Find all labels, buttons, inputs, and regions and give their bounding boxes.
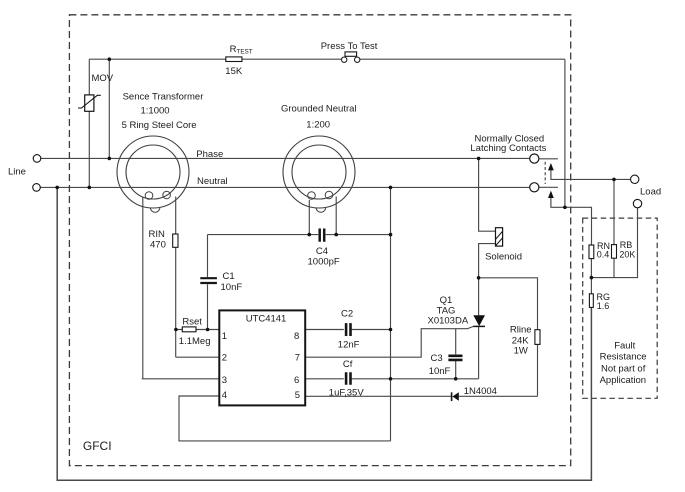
svg-text:Resistance: Resistance (600, 352, 647, 363)
svg-text:C2: C2 (341, 309, 353, 320)
svg-text:Solenoid: Solenoid (485, 252, 522, 263)
svg-text:Sence Transformer: Sence Transformer (123, 91, 204, 102)
svg-text:1.6: 1.6 (597, 301, 610, 311)
svg-text:5: 5 (295, 390, 300, 401)
svg-text:470: 470 (150, 239, 166, 250)
svg-text:Rline: Rline (510, 324, 532, 335)
svg-text:1:1000: 1:1000 (141, 106, 170, 117)
svg-text:Fault: Fault (614, 340, 635, 351)
svg-text:8: 8 (294, 331, 299, 342)
svg-text:1W: 1W (514, 346, 528, 357)
svg-text:Press To Test: Press To Test (321, 41, 378, 52)
svg-text:Neutral: Neutral (197, 176, 228, 187)
svg-text:6: 6 (294, 375, 299, 386)
svg-text:Line: Line (8, 166, 26, 177)
svg-text:1N4004: 1N4004 (464, 386, 497, 397)
svg-text:MOV: MOV (92, 73, 114, 84)
svg-text:5 Ring Steel Core: 5 Ring Steel Core (122, 120, 197, 131)
svg-text:4: 4 (222, 390, 227, 401)
svg-text:C4: C4 (316, 246, 328, 257)
svg-text:20K: 20K (619, 250, 635, 260)
svg-text:Grounded Neutral: Grounded Neutral (281, 103, 357, 114)
svg-text:C3: C3 (431, 353, 443, 364)
svg-text:Cf: Cf (343, 359, 353, 370)
svg-text:Phase: Phase (196, 149, 223, 160)
svg-text:1:200: 1:200 (306, 119, 330, 130)
svg-text:Rset: Rset (182, 317, 202, 328)
svg-text:10nF: 10nF (221, 282, 243, 293)
svg-text:1.1Meg: 1.1Meg (179, 336, 211, 347)
svg-text:3: 3 (222, 375, 227, 386)
svg-text:15K: 15K (225, 66, 243, 77)
svg-text:Application: Application (600, 375, 646, 386)
svg-text:UTC4141: UTC4141 (246, 313, 287, 324)
svg-text:7: 7 (295, 353, 300, 364)
svg-text:GFCI: GFCI (83, 439, 112, 453)
svg-text:1000pF: 1000pF (308, 257, 340, 268)
svg-text:Not part of: Not part of (601, 363, 646, 374)
svg-text:12nF: 12nF (338, 340, 360, 351)
svg-text:1: 1 (222, 331, 227, 342)
svg-text:X0103DA: X0103DA (428, 316, 469, 327)
svg-text:10nF: 10nF (429, 366, 451, 377)
svg-text:2: 2 (222, 353, 227, 364)
svg-text:0.4: 0.4 (597, 250, 610, 260)
svg-text:Load: Load (640, 186, 661, 197)
svg-text:1uF,35V: 1uF,35V (329, 388, 365, 399)
svg-text:Latching Contacts: Latching Contacts (470, 143, 546, 154)
svg-text:C1: C1 (223, 271, 235, 282)
svg-text:RB: RB (620, 240, 633, 250)
